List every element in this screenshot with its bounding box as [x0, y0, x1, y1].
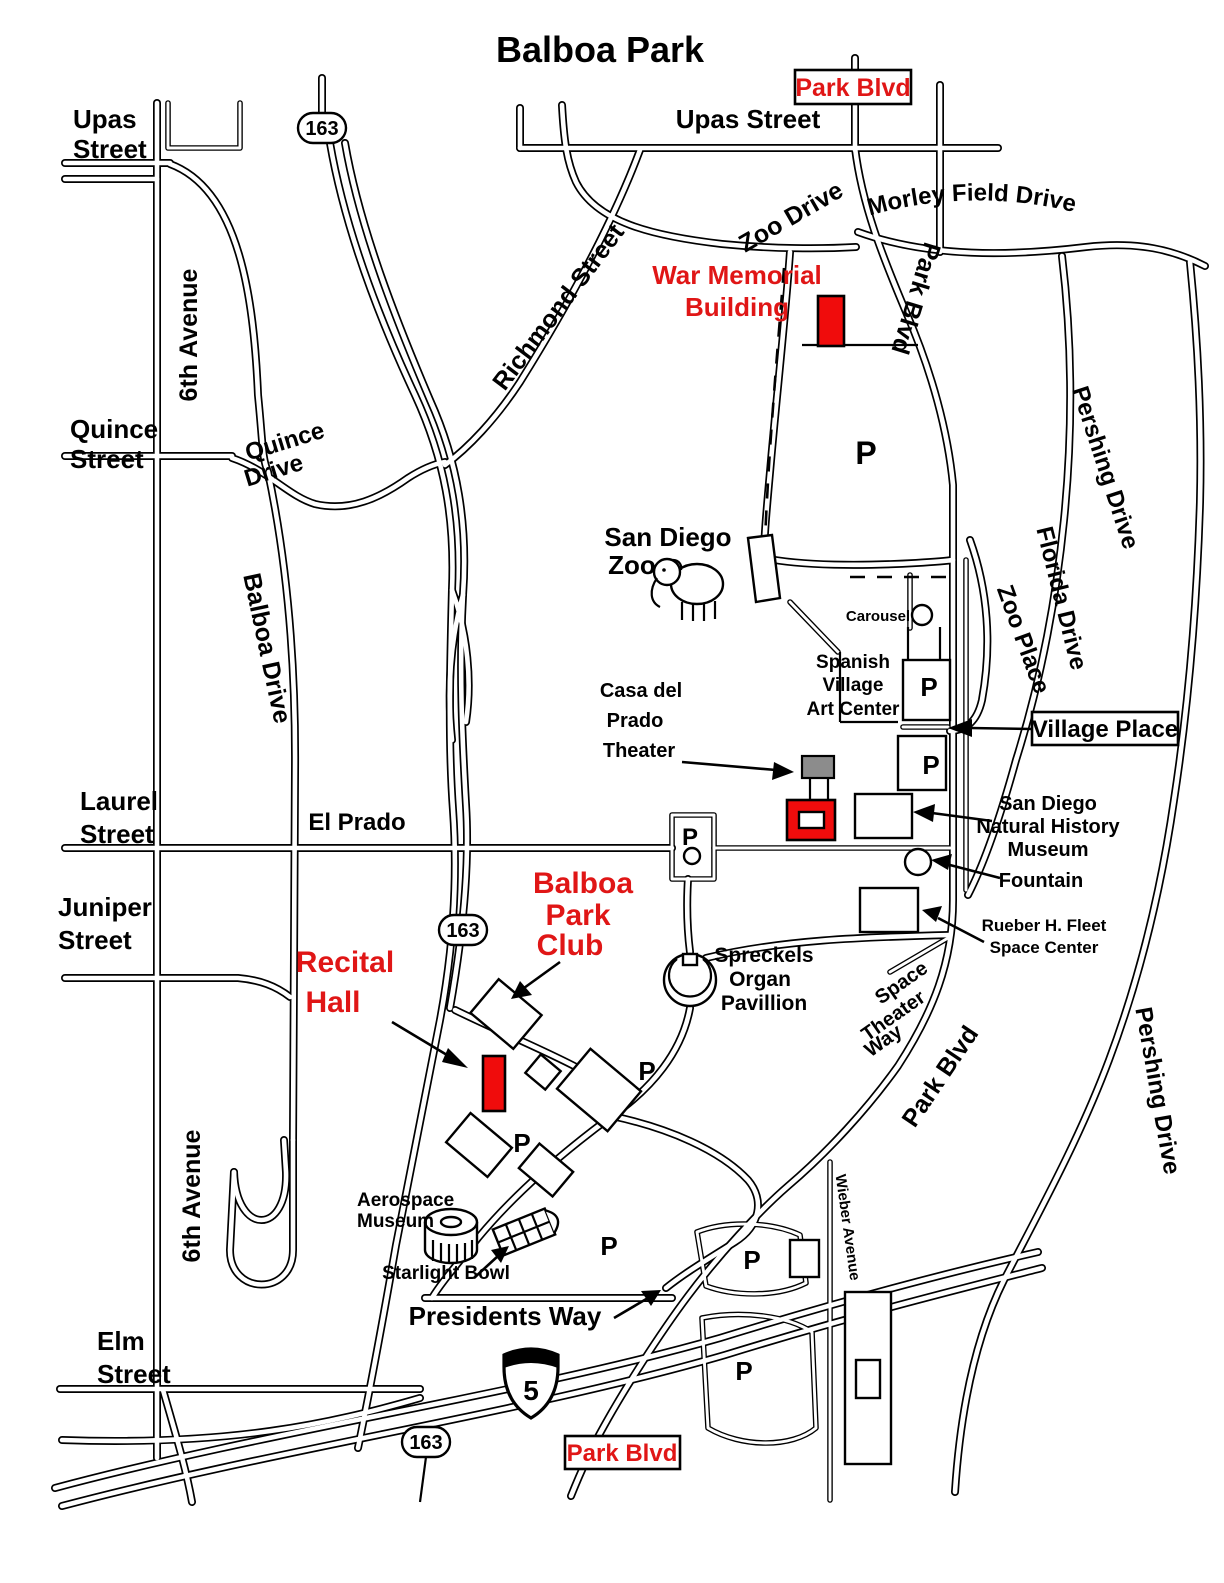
casa-arrow-head: [772, 762, 794, 780]
balboa-park-club-building: [470, 979, 541, 1049]
quince-street-line2: Street: [70, 444, 144, 474]
route-163-shield-top-label: 163: [305, 118, 338, 140]
road-south-slant: [163, 1390, 192, 1502]
natural-history-line3: Museum: [1007, 839, 1088, 861]
morley-field-drive-label: Morley Field Drive: [864, 179, 1079, 221]
park-blvd-upper-label: Park Blvd: [885, 239, 945, 357]
spanish-village-line2: Village: [823, 675, 884, 696]
pavilion-stage: [683, 954, 697, 965]
recital-arrow-head: [442, 1048, 468, 1068]
elm-street-line1: Elm: [97, 1326, 145, 1356]
el-prado-label: El Prado: [308, 809, 405, 836]
san-diego-zoo-line1: San Diego: [604, 522, 731, 552]
casa-del-prado-connectors: [810, 778, 828, 800]
natural-history-museum-building: [855, 794, 912, 838]
natural-history-line2: Natural History: [976, 816, 1120, 838]
elephant-icon: [652, 559, 723, 621]
fleet-line2: Space Center: [990, 938, 1099, 957]
quince-street-line1: Quince: [70, 414, 158, 444]
village-place-arrow-line: [970, 728, 1032, 729]
aerospace-line1: Aerospace: [357, 1190, 454, 1211]
starlight-bowl-label: Starlight Bowl: [382, 1263, 510, 1284]
parking-organ-pavilion: P: [638, 1056, 655, 1086]
fountain-arrow-head: [931, 854, 952, 870]
carousel-lot-stem: [908, 627, 940, 660]
laurel-street-line2: Street: [80, 819, 154, 849]
elephant-eye: [662, 568, 666, 572]
shield-163-bottom-stub: [420, 1457, 426, 1502]
club-area-building-1: [446, 1113, 512, 1177]
road-hairpin-inner: [234, 1140, 286, 1220]
spreckels-line1: Spreckels: [714, 944, 813, 967]
parking-zoo: P: [855, 435, 876, 471]
aerospace-line2: Museum: [357, 1211, 434, 1232]
road-upas-block: [168, 103, 240, 148]
map-title: Balboa Park: [496, 29, 705, 70]
road-surfaces: [55, 58, 1205, 1506]
wieber-avenue-label: Wieber Avenue: [832, 1173, 864, 1281]
road-mall-south: [687, 879, 690, 952]
parking-lot-b: P: [735, 1356, 752, 1386]
recital-hall-line1: Recital: [296, 946, 394, 979]
aerospace-roof-inner: [441, 1217, 461, 1227]
fleet-line1: Rueber H. Fleet: [982, 916, 1107, 935]
laurel-street-line1: Laurel: [80, 786, 158, 816]
pershing-drive-south-label: Pershing Drive: [1129, 1005, 1185, 1177]
village-place-label: Village Place: [1032, 716, 1178, 743]
spanish-village-line3: Art Center: [807, 699, 901, 720]
route-163-shield-bottom-label: 163: [409, 1432, 442, 1454]
elm-street-line2: Street: [97, 1359, 171, 1389]
club-arrow-line: [524, 962, 560, 988]
museum-arrow-head: [913, 804, 935, 822]
parking-club-area: P: [513, 1128, 530, 1158]
natural-history-line1: San Diego: [999, 793, 1097, 815]
sixth-avenue-south-label: 6th Avenue: [178, 1129, 206, 1262]
spreckels-pavilion-icon: [664, 954, 716, 1006]
casa-del-prado-line2: Prado: [607, 710, 664, 732]
parking-presidents-way: P: [600, 1231, 617, 1261]
upas-street-left-line2: Street: [73, 134, 147, 164]
carousel-label: Carousel: [846, 608, 910, 625]
casa-del-prado-line1: Casa del: [600, 680, 682, 702]
parking-spanish-village-upper: P: [920, 672, 937, 702]
route-163-shield-mid-label: 163: [446, 920, 479, 942]
upas-street-left-line1: Upas: [73, 104, 137, 134]
fountain-icon: [905, 849, 931, 875]
balboa-park-club-line1: Balboa: [533, 867, 633, 900]
parking-el-prado: P: [682, 824, 698, 851]
parking-spanish-village-lower: P: [922, 750, 939, 780]
war-memorial-building-footprint: [818, 296, 844, 346]
park-blvd-lower-label: Park Blvd: [897, 1021, 985, 1132]
juniper-street-line1: Juniper: [58, 892, 152, 922]
spanish-village-line1: Spanish: [816, 652, 890, 673]
juniper-street-line2: Street: [58, 925, 132, 955]
road-casings: [55, 58, 1205, 1506]
elephant-head: [654, 559, 680, 585]
sixth-avenue-north-label: 6th Avenue: [175, 268, 203, 401]
spreckels-line3: Pavillion: [721, 992, 807, 1015]
san-diego-zoo-line2: Zoo: [608, 550, 656, 580]
recital-hall-line2: Hall: [305, 986, 360, 1019]
road-club-loop-casing: [612, 1116, 758, 1288]
parking-lot-a: P: [743, 1245, 760, 1275]
war-memorial-line1: War Memorial: [652, 260, 822, 290]
balboa-park-map: 163 163 163 5 Park Blvd Village Place Pa…: [0, 0, 1224, 1583]
wieber-long-building-inner: [856, 1360, 880, 1398]
presidents-way-label: Presidents Way: [409, 1301, 602, 1331]
casa-del-prado-line3: Theater: [603, 740, 675, 762]
balboa-park-club-line3: Club: [537, 929, 604, 962]
upas-street-right-label: Upas Street: [676, 104, 821, 134]
pershing-drive-north-label: Pershing Drive: [1066, 383, 1144, 552]
casa-del-prado-gray-block: [802, 756, 834, 778]
recital-arrow-line: [392, 1022, 452, 1058]
balboa-park-club-line2: Park: [545, 899, 610, 932]
casa-del-prado-theater-courtyard: [799, 812, 824, 828]
interstate-5-label: 5: [523, 1375, 539, 1406]
war-memorial-line2: Building: [685, 292, 789, 322]
map-canvas: 163 163 163 5 Park Blvd Village Place Pa…: [0, 0, 1224, 1583]
fleet-space-center-building: [860, 888, 918, 932]
casa-arrow-line: [682, 762, 776, 770]
recital-hall-footprint: [483, 1056, 505, 1111]
road-upas-block-casing: [168, 103, 240, 148]
carousel-icon: [912, 605, 932, 625]
park-blvd-bottom-label: Park Blvd: [567, 1440, 678, 1467]
fountain-label: Fountain: [999, 870, 1083, 892]
park-blvd-top-label: Park Blvd: [795, 74, 910, 102]
spreckels-line2: Organ: [729, 968, 791, 991]
wieber-small-building: [790, 1240, 819, 1277]
richmond-street-label: Richmond Street: [487, 218, 630, 395]
street-labels: Balboa Park Upas Street Upas Street Morl…: [58, 29, 1185, 1389]
zoo-building: [748, 535, 780, 602]
road-zoo-entry: [790, 602, 838, 652]
